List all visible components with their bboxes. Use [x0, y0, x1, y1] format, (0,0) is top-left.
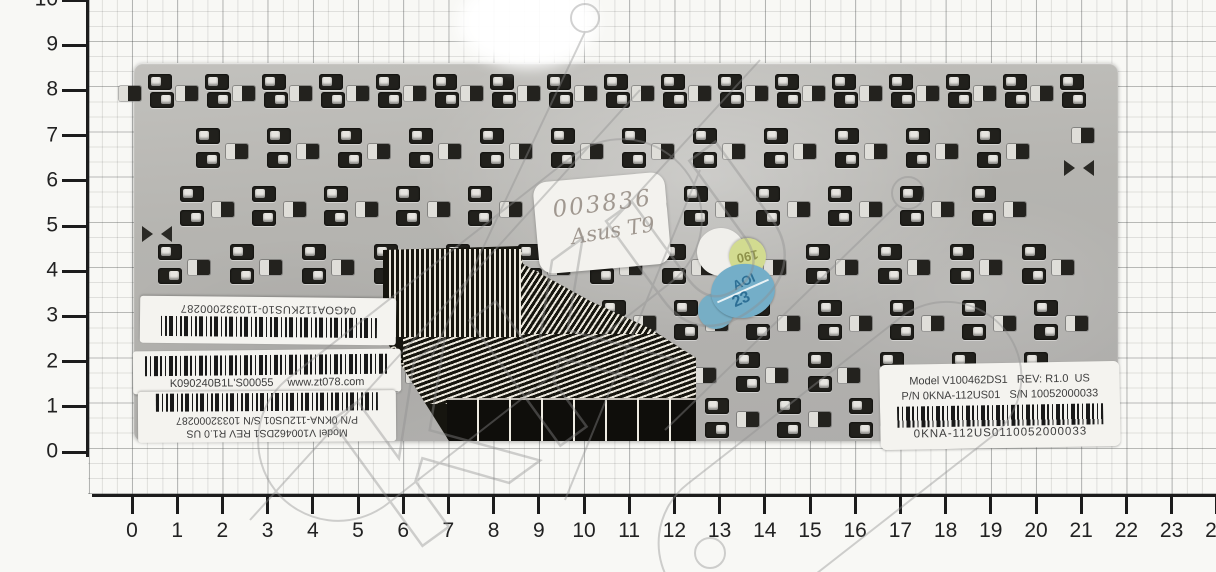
hook-cluster	[890, 300, 914, 316]
ruler-tick	[899, 497, 902, 514]
ruler-number: 3	[16, 304, 58, 328]
hook-slot	[980, 260, 1002, 275]
hook-slot	[794, 144, 816, 159]
ruler-tick	[402, 497, 405, 514]
hook-cluster	[950, 268, 974, 284]
barcode	[156, 393, 378, 413]
hook-cluster	[158, 268, 182, 284]
hook-slot	[723, 144, 745, 159]
hook-cluster	[835, 128, 859, 144]
hook-cluster	[889, 74, 913, 90]
hook-slot	[188, 260, 210, 275]
hook-cluster	[604, 74, 628, 90]
hook-slot	[689, 86, 711, 101]
ruler-number: 14	[745, 519, 785, 543]
sticker-handwritten: 003836 Asus T9	[532, 171, 672, 274]
hook-cluster	[890, 324, 914, 340]
ruler-tick	[1080, 497, 1083, 514]
hook-cluster	[302, 244, 326, 260]
label-seller: K090240B1L'S00055 www.zt078.com	[133, 349, 401, 395]
ruler-number: 16	[835, 519, 875, 543]
hook-cluster	[806, 244, 830, 260]
ruler-number: 6	[16, 168, 58, 192]
barcode	[145, 353, 389, 376]
barcode	[159, 316, 377, 338]
hook-slot	[694, 368, 716, 383]
hook-slot	[860, 86, 882, 101]
ruler-tick	[266, 497, 269, 514]
ruler-number: 1	[16, 394, 58, 418]
hook-cluster	[435, 92, 459, 108]
hook-slot	[428, 202, 450, 217]
hook-cluster	[977, 128, 1001, 144]
hook-cluster	[409, 152, 433, 168]
ruler-number: 17	[880, 519, 920, 543]
ruler-number: 19	[971, 519, 1011, 543]
hook-cluster	[818, 324, 842, 340]
hook-cluster	[378, 92, 402, 108]
ruler-number: 11	[609, 519, 649, 543]
hook-cluster	[1005, 92, 1029, 108]
hook-slot	[347, 86, 369, 101]
ruler-number: 13	[700, 519, 740, 543]
ruler-number: 8	[474, 519, 514, 543]
hook-cluster	[319, 74, 343, 90]
hook-cluster	[1034, 324, 1058, 340]
hook-slot	[1031, 86, 1053, 101]
ruler-number: 4	[16, 259, 58, 283]
hook-cluster	[878, 268, 902, 284]
flex-traces-diagonal	[403, 334, 696, 404]
hook-slot	[766, 368, 788, 383]
ruler-number: 6	[383, 519, 423, 543]
hook-cluster	[756, 186, 780, 202]
hook-cluster	[252, 186, 276, 202]
butterfly-latch	[1064, 160, 1094, 176]
hook-slot	[575, 86, 597, 101]
hook-slot	[1007, 144, 1029, 159]
hook-cluster	[948, 92, 972, 108]
ruler-number: 10	[16, 0, 58, 12]
ruler-tick	[357, 497, 360, 514]
hook-slot	[212, 202, 234, 217]
hook-slot	[994, 316, 1016, 331]
ruler-number: 12	[654, 519, 694, 543]
hook-cluster	[777, 92, 801, 108]
label-pn-text: P/N 0KNA-112US01 S/N 10052000033	[901, 386, 1098, 404]
ruler-tick	[1035, 497, 1038, 514]
ruler-number: 21	[1061, 519, 1101, 543]
hook-cluster	[946, 74, 970, 90]
hook-cluster	[746, 324, 770, 340]
label-serial-flipped: 04GOA112KUS10-110332000287	[140, 296, 396, 346]
hook-slot	[788, 202, 810, 217]
hook-cluster	[196, 152, 220, 168]
hook-cluster	[1022, 244, 1046, 260]
ruler-number: 7	[428, 519, 468, 543]
ruler-number: 9	[16, 33, 58, 57]
hook-slot	[1072, 128, 1094, 143]
hook-slot	[581, 144, 603, 159]
hook-slot	[226, 144, 248, 159]
hook-cluster	[480, 152, 504, 168]
ruler-tick	[492, 497, 495, 514]
hook-slot	[716, 202, 738, 217]
ruler-tick	[62, 315, 88, 318]
hook-slot	[233, 86, 255, 101]
hook-cluster	[1034, 300, 1058, 316]
hook-slot	[461, 86, 483, 101]
ruler-tick	[1125, 497, 1128, 514]
hook-cluster	[900, 186, 924, 202]
hook-slot	[974, 86, 996, 101]
ruler-number: 2	[16, 349, 58, 373]
ruler-number: 23	[1152, 519, 1192, 543]
ruler-tick	[62, 405, 88, 408]
hook-cluster	[972, 210, 996, 226]
dot-text: 23	[730, 288, 754, 312]
hook-slot	[356, 202, 378, 217]
ruler-number: 7	[16, 123, 58, 147]
hook-slot	[932, 202, 954, 217]
ruler-tick	[673, 497, 676, 514]
hook-cluster	[433, 74, 457, 90]
hook-cluster	[835, 152, 859, 168]
hook-cluster	[662, 268, 686, 284]
ruler-tick	[62, 451, 88, 454]
hook-slot	[284, 202, 306, 217]
hook-cluster	[764, 152, 788, 168]
hook-slot	[737, 412, 759, 427]
hook-cluster	[736, 352, 760, 368]
hook-cluster	[849, 398, 873, 414]
ruler-number: 9	[519, 519, 559, 543]
ruler-tick	[62, 270, 88, 273]
hook-cluster	[950, 244, 974, 260]
hook-cluster	[834, 92, 858, 108]
hook-cluster	[252, 210, 276, 226]
hook-cluster	[148, 74, 172, 90]
hook-cluster	[338, 152, 362, 168]
hook-cluster	[180, 186, 204, 202]
hook-slot	[809, 412, 831, 427]
ruler-number: 5	[338, 519, 378, 543]
hook-cluster	[324, 210, 348, 226]
hook-cluster	[338, 128, 362, 144]
ruler-number: 1	[157, 519, 197, 543]
ruler-tick	[944, 497, 947, 514]
hook-cluster	[962, 324, 986, 340]
hook-cluster	[661, 74, 685, 90]
hook-cluster	[180, 210, 204, 226]
hook-cluster	[962, 300, 986, 316]
ruler-tick	[989, 497, 992, 514]
hook-cluster	[230, 244, 254, 260]
hook-cluster	[551, 152, 575, 168]
hook-cluster	[1003, 74, 1027, 90]
hook-cluster	[321, 92, 345, 108]
hook-cluster	[490, 74, 514, 90]
hook-cluster	[590, 268, 614, 284]
hook-cluster	[828, 210, 852, 226]
ruler-tick	[62, 134, 88, 137]
hook-cluster	[720, 92, 744, 108]
hook-cluster	[906, 128, 930, 144]
hook-cluster	[207, 92, 231, 108]
hook-slot	[652, 144, 674, 159]
hook-cluster	[262, 74, 286, 90]
ruler-tick	[62, 0, 88, 2]
hook-cluster	[158, 244, 182, 260]
hook-slot	[850, 316, 872, 331]
ruler-tick	[311, 497, 314, 514]
hook-cluster	[396, 186, 420, 202]
hook-slot	[368, 144, 390, 159]
hook-cluster	[832, 74, 856, 90]
hook-slot	[260, 260, 282, 275]
hook-slot	[439, 144, 461, 159]
hook-slot	[936, 144, 958, 159]
hook-cluster	[1022, 268, 1046, 284]
hook-slot	[860, 202, 882, 217]
ruler-number: 8	[16, 78, 58, 102]
ruler-number: 3	[248, 519, 288, 543]
hook-slot	[510, 144, 532, 159]
hook-cluster	[684, 210, 708, 226]
hook-cluster	[906, 152, 930, 168]
hook-cluster	[150, 92, 174, 108]
ruler-tick	[62, 44, 88, 47]
label-serial-text: K090240B1L'S00055	[170, 376, 274, 389]
hook-cluster	[468, 210, 492, 226]
hook-cluster	[267, 128, 291, 144]
label-model-right: Model V100462DS1 REV: R1.0 US P/N 0KNA-1…	[879, 361, 1120, 450]
barcode	[897, 403, 1103, 428]
hook-cluster	[324, 186, 348, 202]
hook-slot	[836, 260, 858, 275]
hook-cluster	[828, 186, 852, 202]
label-pn-text: P/N 0KNA-112US01 S/N 10332000287	[176, 413, 358, 427]
ruler-number: 0	[16, 440, 58, 464]
hook-slot	[1066, 316, 1088, 331]
ruler-tick	[763, 497, 766, 514]
hook-slot	[332, 260, 354, 275]
hook-cluster	[972, 186, 996, 202]
hook-cluster	[1062, 92, 1086, 108]
hook-slot	[803, 86, 825, 101]
seller-site-text: www.zt078.com	[287, 375, 364, 388]
hook-cluster	[693, 152, 717, 168]
hook-cluster	[492, 92, 516, 108]
hook-cluster	[549, 92, 573, 108]
hook-cluster	[622, 152, 646, 168]
hook-cluster	[396, 210, 420, 226]
hook-slot	[1004, 202, 1026, 217]
ruler-number: 18	[926, 519, 966, 543]
hook-cluster	[718, 74, 742, 90]
ruler-number: 0	[112, 519, 152, 543]
hook-slot	[908, 260, 930, 275]
ruler-tick	[221, 497, 224, 514]
hook-slot	[290, 86, 312, 101]
hook-cluster	[878, 244, 902, 260]
hook-cluster	[622, 128, 646, 144]
ruler-number: 15	[790, 519, 830, 543]
hook-cluster	[705, 422, 729, 438]
hook-cluster	[409, 128, 433, 144]
ruler-tick	[537, 497, 540, 514]
hook-cluster	[777, 398, 801, 414]
flex-traces-comb	[389, 249, 521, 337]
ruler-tick	[62, 360, 88, 363]
label-model-text: Model V100462DS1 REV R1.0 US	[187, 426, 348, 440]
hook-slot	[778, 316, 800, 331]
hook-cluster	[891, 92, 915, 108]
hook-cluster	[196, 128, 220, 144]
hook-slot	[922, 316, 944, 331]
ruler-number: 22	[1106, 519, 1146, 543]
ruler-number: 4	[293, 519, 333, 543]
hook-cluster	[205, 74, 229, 90]
hook-cluster	[693, 128, 717, 144]
hook-cluster	[480, 128, 504, 144]
hook-cluster	[900, 210, 924, 226]
label-code-text: 0KNA-112US0110052000033	[914, 425, 1088, 440]
hook-cluster	[705, 398, 729, 414]
ruler-tick	[583, 497, 586, 514]
hook-slot	[404, 86, 426, 101]
hook-cluster	[264, 92, 288, 108]
hook-cluster	[1060, 74, 1084, 90]
label-code-text: 04GOA112KUS10-110332000287	[180, 303, 356, 317]
ruler-tick	[447, 497, 450, 514]
ruler-number: 5	[16, 214, 58, 238]
hook-cluster	[551, 128, 575, 144]
ruler-tick	[854, 497, 857, 514]
ruler-tick	[62, 179, 88, 182]
hook-cluster	[547, 74, 571, 90]
flex-contact-band	[447, 398, 696, 441]
hook-cluster	[376, 74, 400, 90]
ruler-tick	[176, 497, 179, 514]
hook-cluster	[777, 422, 801, 438]
hook-slot	[746, 86, 768, 101]
ruler-number: 2	[202, 519, 242, 543]
ruler-tick	[1170, 497, 1173, 514]
hook-cluster	[808, 352, 832, 368]
hook-slot	[119, 86, 141, 101]
ruler-bottom-axis	[92, 494, 1216, 497]
hook-cluster	[684, 186, 708, 202]
hook-cluster	[756, 210, 780, 226]
hook-cluster	[818, 300, 842, 316]
hook-cluster	[764, 128, 788, 144]
hook-cluster	[806, 268, 830, 284]
hook-slot	[500, 202, 522, 217]
hook-cluster	[674, 324, 698, 340]
ruler-tick	[809, 497, 812, 514]
hook-slot	[176, 86, 198, 101]
hook-cluster	[606, 92, 630, 108]
ruler-tick	[62, 225, 88, 228]
hook-cluster	[674, 300, 698, 316]
label-pn-flipped: Model V100462DS1 REV R1.0 US P/N 0KNA-11…	[138, 390, 396, 443]
hook-slot	[838, 368, 860, 383]
ruler-tick	[718, 497, 721, 514]
hook-cluster	[808, 376, 832, 392]
hook-slot	[865, 144, 887, 159]
ruler-tick	[131, 497, 134, 514]
butterfly-latch	[142, 226, 172, 242]
hook-cluster	[736, 376, 760, 392]
ruler-tick	[62, 89, 88, 92]
hook-cluster	[663, 92, 687, 108]
hook-slot	[917, 86, 939, 101]
ruler-tick	[628, 497, 631, 514]
hook-cluster	[849, 422, 873, 438]
hook-cluster	[302, 268, 326, 284]
hook-slot	[518, 86, 540, 101]
ruler-left-axis	[86, 0, 89, 457]
hook-slot	[632, 86, 654, 101]
hook-slot	[297, 144, 319, 159]
hook-cluster	[230, 268, 254, 284]
ruler-number: 24	[1197, 519, 1216, 543]
hook-cluster	[775, 74, 799, 90]
ruler-number: 20	[1016, 519, 1056, 543]
hook-cluster	[267, 152, 291, 168]
hook-cluster	[468, 186, 492, 202]
hook-cluster	[977, 152, 1001, 168]
ruler-number: 10	[564, 519, 604, 543]
hook-slot	[1052, 260, 1074, 275]
